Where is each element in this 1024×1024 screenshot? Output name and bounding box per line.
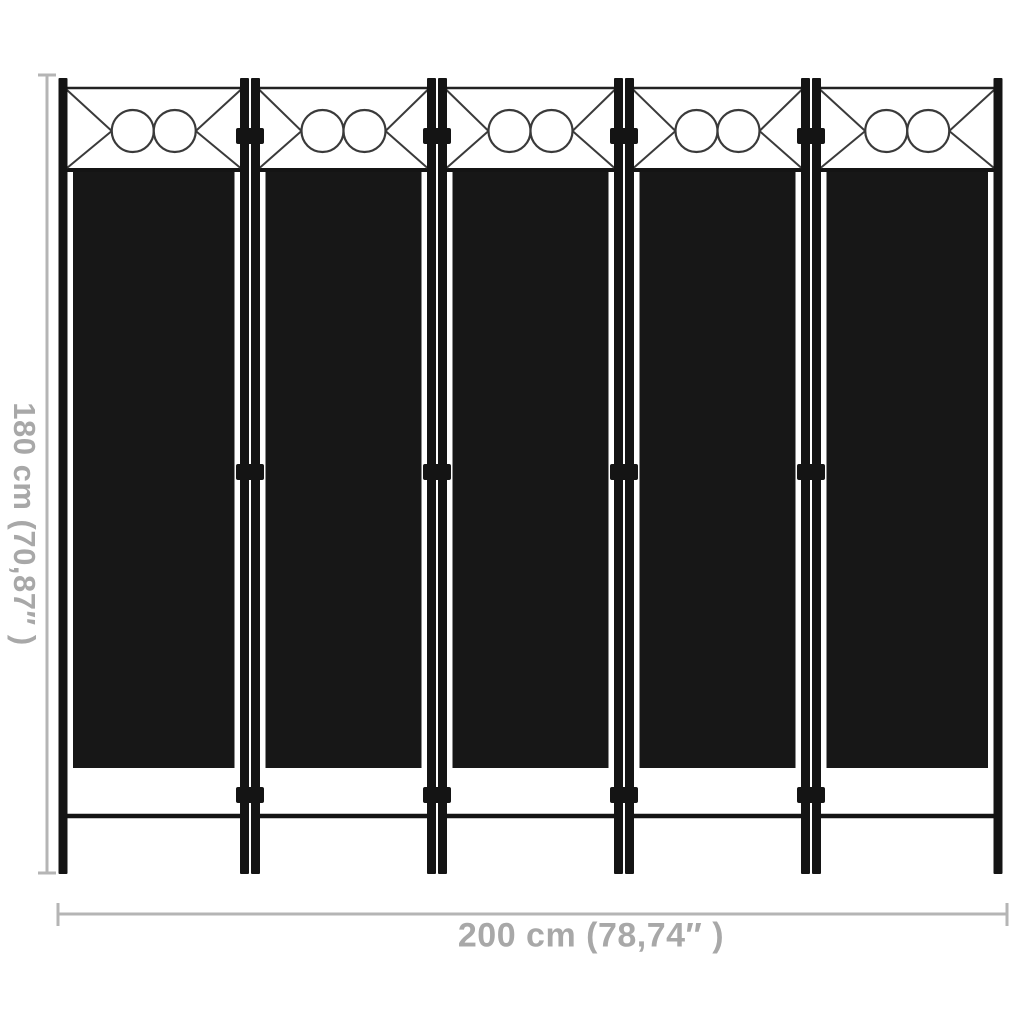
divider-panel-5 (812, 78, 1003, 874)
room-divider-diagram (0, 0, 1024, 1024)
divider-panel-2 (251, 78, 436, 874)
hinge-block (610, 787, 638, 803)
divider-panel-1 (59, 78, 250, 874)
hinge-block (236, 128, 264, 144)
divider-panel-4 (625, 78, 810, 874)
hinge-block (797, 128, 825, 144)
ornament-circle (531, 110, 573, 152)
panel-fabric (266, 172, 422, 768)
panel-pole (994, 78, 1003, 874)
ornament-circle (302, 110, 344, 152)
panel-fabric (453, 172, 609, 768)
panel-fabric (640, 172, 796, 768)
ornament-circle (676, 110, 718, 152)
divider-panel-3 (438, 78, 623, 874)
hinge-block (236, 464, 264, 480)
hinge-block (610, 464, 638, 480)
panel-fabric (827, 172, 989, 768)
width-dimension-label: 200 cm (78,74″ ) (458, 917, 724, 956)
panel-pole (59, 78, 68, 874)
hinge-block (423, 464, 451, 480)
panel-fabric (73, 172, 235, 768)
hinge-block (423, 787, 451, 803)
product-image-canvas: 180 cm (70,87″ ) 200 cm (78,74″ ) (0, 0, 1024, 1024)
ornament-circle (865, 110, 907, 152)
ornament-circle (718, 110, 760, 152)
ornament-circle (112, 110, 154, 152)
ornament-circle (154, 110, 196, 152)
height-dimension-label: 180 cm (70,87″ ) (6, 402, 42, 645)
ornament-circle (907, 110, 949, 152)
hinge-block (236, 787, 264, 803)
hinge-block (423, 128, 451, 144)
hinge-block (610, 128, 638, 144)
hinge-block (797, 464, 825, 480)
ornament-circle (489, 110, 531, 152)
ornament-circle (344, 110, 386, 152)
hinge-block (797, 787, 825, 803)
